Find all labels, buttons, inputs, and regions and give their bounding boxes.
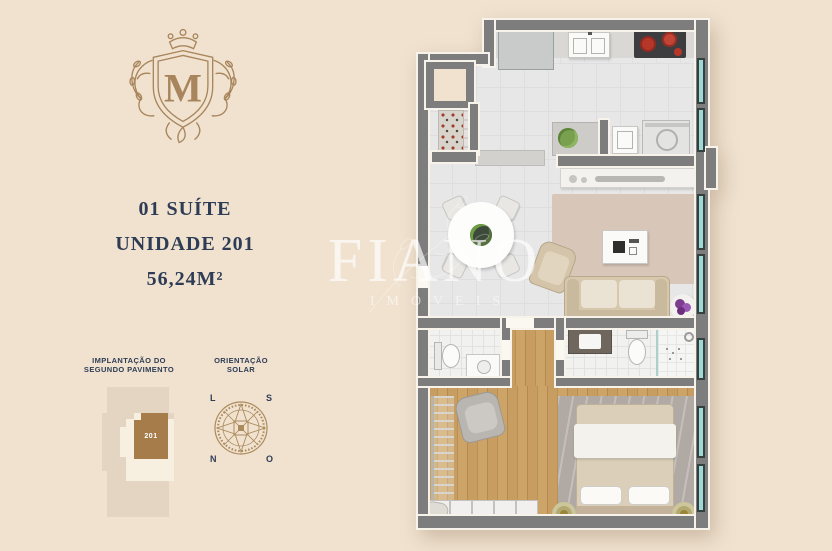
suite-count-label: 01 SUÍTE xyxy=(70,198,300,221)
building-footprint-upper xyxy=(107,387,169,413)
building-notch xyxy=(120,427,130,457)
dining-table xyxy=(448,202,514,268)
wall-left xyxy=(418,54,428,526)
entry-shoe-rack xyxy=(438,110,464,154)
site-plan-title-line1: IMPLANTAÇÃO DO xyxy=(74,356,184,365)
wall-top xyxy=(492,20,706,30)
unit-notch xyxy=(134,413,141,420)
compass-letter-east: L xyxy=(210,393,216,403)
wall-right-niche xyxy=(706,148,716,188)
wall-entry-bottom xyxy=(432,152,476,162)
refrigerator xyxy=(498,30,554,70)
shaft-opening xyxy=(434,69,466,101)
wall-lavatory-bottom xyxy=(418,378,510,386)
crest-letter: M xyxy=(164,65,202,110)
wall-suitebath-bottom xyxy=(556,378,707,386)
window-living-lower xyxy=(697,254,705,314)
tv-console xyxy=(560,168,696,188)
suite-vanity xyxy=(568,328,612,354)
solar-title-line2: SOLAR xyxy=(186,365,296,374)
solar-title: ORIENTAÇÃO SOLAR xyxy=(186,356,296,374)
window-service xyxy=(697,108,705,152)
window-bedroom-lower xyxy=(697,464,705,512)
entrance-door xyxy=(418,266,428,288)
washing-machine xyxy=(642,120,690,158)
brand-crest-logo: M xyxy=(116,26,250,148)
compass-letter-west: O xyxy=(266,454,273,464)
lavatory-vanity xyxy=(466,354,500,378)
suite-toilet xyxy=(624,330,650,368)
solar-title-line1: ORIENTAÇÃO xyxy=(186,356,296,365)
kitchen-bench xyxy=(475,150,545,166)
site-plan-title-line2: SEGUNDO PAVIMENTO xyxy=(74,365,184,374)
site-plan-title: IMPLANTAÇÃO DO SEGUNDO PAVIMENTO xyxy=(74,356,184,374)
compass-letter-north: N xyxy=(210,454,217,464)
closet-rail xyxy=(431,396,454,500)
compass-rose: L S N O xyxy=(196,383,286,473)
lavatory-toilet xyxy=(434,340,460,372)
window-kitchen xyxy=(697,58,705,104)
apartment-floor-plan xyxy=(418,8,718,548)
cooktop-stove xyxy=(634,30,686,58)
unit-info: 01 SUÍTE UNIDADE 201 56,24M² xyxy=(70,198,300,303)
corridor-door xyxy=(506,318,534,328)
window-bedroom-upper xyxy=(697,406,705,458)
crest-icon: M xyxy=(116,26,250,148)
counter-plant xyxy=(558,128,578,148)
wall-service xyxy=(558,156,707,166)
window-living-upper xyxy=(697,194,705,250)
lavatory-door xyxy=(502,340,510,360)
compass-letter-south: S xyxy=(266,393,272,403)
sofa xyxy=(564,276,670,324)
kitchen-sink xyxy=(568,32,610,58)
suite-bathroom-door xyxy=(556,340,564,360)
site-plan-minimap: 201 xyxy=(96,383,186,523)
unit-area-label: 56,24M² xyxy=(70,268,300,291)
laundry-tank xyxy=(612,126,638,154)
wall-entry-right xyxy=(470,104,478,154)
minimap-unit-number: 201 xyxy=(144,433,157,440)
shower-stall xyxy=(656,326,698,380)
coffee-table xyxy=(602,230,648,264)
window-bathroom xyxy=(697,338,705,380)
compass-icon: L S N O xyxy=(196,383,286,473)
brochure-page: M 01 SUÍTE UNIDADE 201 56,24M² IMPLANTAÇ… xyxy=(0,0,832,551)
double-bed xyxy=(576,404,674,518)
wall-bottom xyxy=(418,516,708,528)
unit-number-label: UNIDADE 201 xyxy=(70,233,300,256)
corridor-floor xyxy=(506,320,556,390)
flower-side-table xyxy=(670,294,696,320)
